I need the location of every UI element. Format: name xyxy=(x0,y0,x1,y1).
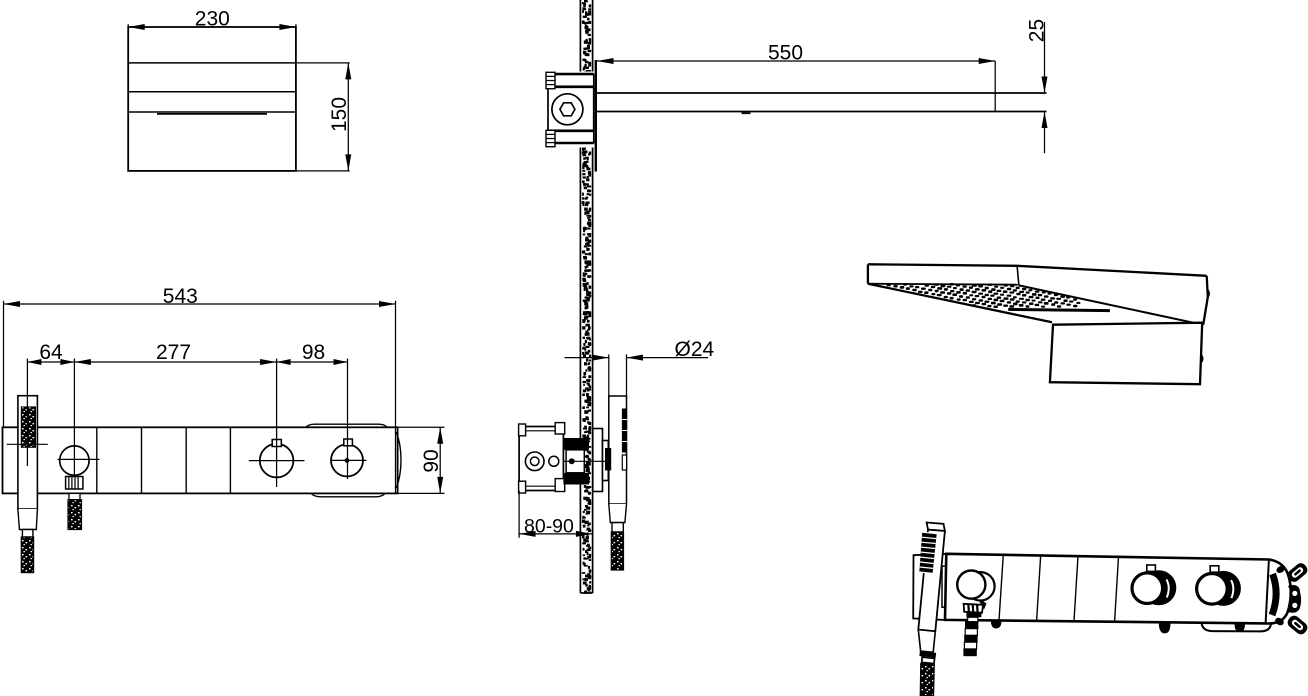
svg-text:98: 98 xyxy=(302,341,325,364)
svg-text:230: 230 xyxy=(195,7,230,30)
svg-text:Ø24: Ø24 xyxy=(675,338,715,361)
svg-text:64: 64 xyxy=(39,341,63,364)
svg-text:543: 543 xyxy=(163,285,198,308)
svg-text:80-90: 80-90 xyxy=(524,516,574,538)
svg-text:25: 25 xyxy=(1025,19,1048,42)
svg-text:150: 150 xyxy=(328,97,351,132)
svg-text:90: 90 xyxy=(420,449,443,472)
svg-text:277: 277 xyxy=(156,341,191,364)
svg-text:550: 550 xyxy=(768,42,803,65)
